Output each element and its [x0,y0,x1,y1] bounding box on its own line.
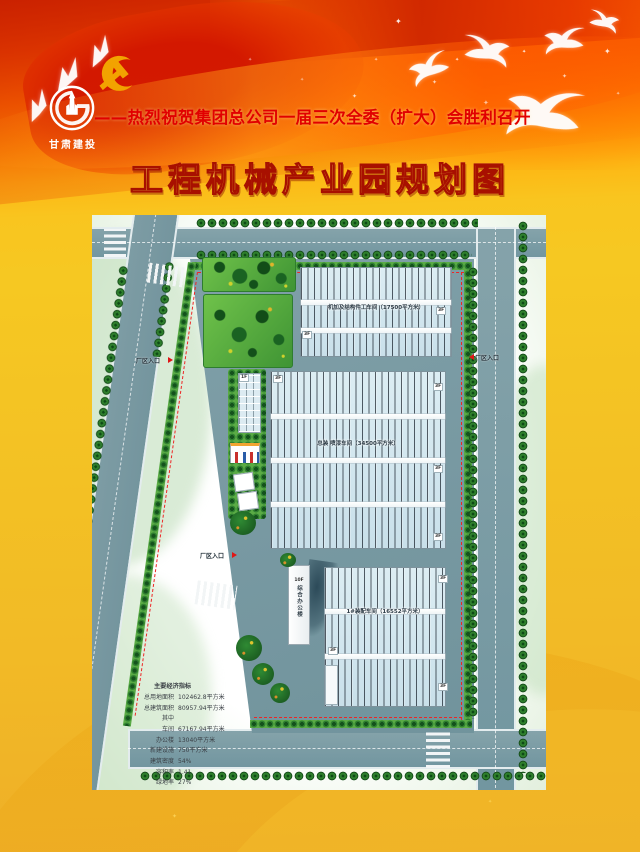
company-logo-icon [48,84,96,132]
entrance-label: 厂区入口 [200,551,224,560]
sparkle-icon: ✦ [604,48,611,56]
indicator-row: 容积率1.41 [114,768,284,779]
sparkle-icon: ✦ [248,58,252,63]
landscape-blob [230,511,256,535]
economic-indicators: 主要经济指标 总用地面积102462.8平方米 总建筑面积80957.94平方米… [114,681,284,789]
lane-line [495,227,496,790]
floor-tag: 3F [302,331,312,339]
entrance-arrow-icon [168,357,176,363]
workshop-machining [300,267,452,357]
crosswalk [195,580,238,609]
ancillary-building [233,472,255,493]
floor-tag: 3F [438,683,448,691]
floor-tag: 3F [433,465,443,473]
entrance-label: 厂区入口 [136,356,160,365]
energy-workshop-building [238,373,261,433]
sparkle-icon: ✦ [352,94,357,100]
sparkle-icon: ✦ [395,18,402,26]
site-boundary-dash [254,717,462,718]
workshop-label: 1#装配车间（16552平方米） [324,607,446,615]
dove-icon [537,16,589,63]
road-right [476,227,516,790]
floor-tag: 3F [436,307,446,315]
street-trees [468,267,478,719]
site-boundary-dash [461,272,462,720]
sparkle-icon: ✦ [488,800,492,805]
workshop-assembly-1 [324,567,446,707]
park-grove [203,294,293,368]
sparkle-icon: ✦ [432,80,437,86]
workshop-assembly-paint [270,371,446,549]
indicator-row: 办公楼13040平方米 [114,736,284,747]
floor-tag: 3F [438,575,448,583]
lane-line [92,242,546,243]
workshop-label: 总装 喷漆车间（34500平方米） [270,439,446,447]
floor-tag: 1F [239,374,249,382]
indicator-row: 其中 [114,714,284,725]
logo-text: 甘肃建投 [38,136,108,151]
sparkle-icon: ✦ [374,58,378,63]
dove-icon [402,45,453,91]
landscape-blob [236,635,262,661]
sparkle-icon: ✦ [455,58,459,63]
indicator-row: 新建设施750平方米 [114,746,284,757]
floor-tag: 3F [433,533,443,541]
office-label: 综合办公楼 [295,585,303,618]
indicator-row: 总建筑面积80957.94平方米 [114,704,284,715]
floor-tag: 10F [294,578,303,583]
poster: ✦ ✦ ✦ ✦ ✦ ✦ ✦ ✦ ✦ ✦ ✦ ✦ ✦ ✦ 甘肃建投 ——热烈祝贺集… [0,0,640,852]
dove-icon [588,6,622,36]
sparkle-icon: ✦ [172,814,177,820]
exhibit-building [230,443,260,463]
entrance-arrow-icon [466,354,474,360]
crosswalk [426,730,450,768]
sparkle-icon: ✦ [300,78,304,83]
landscape-blob [280,553,296,567]
entrance-arrow-icon [232,552,240,558]
office-tower: 10F 综合办公楼 [288,565,310,645]
street-trees [196,218,478,228]
entrance-label: 厂区入口 [475,353,499,362]
indicator-row: 建筑密度54% [114,757,284,768]
indicator-row: 车间67167.94平方米 [114,725,284,736]
indicator-row: 总用地面积102462.8平方米 [114,693,284,704]
sparkle-icon: ✦ [522,50,526,55]
sparkle-icon: ✦ [562,74,567,80]
sparkle-icon: ✦ [616,92,620,97]
street-trees [518,221,528,773]
park-grove [202,257,296,292]
crosswalk [104,229,126,257]
workshop-label: 机加及结构件工车间（17500平方米） [300,303,452,311]
congrats-banner-text: ——热烈祝贺集团总公司一届三次全委（扩大）会胜利召开 [94,104,594,128]
indicator-row: 绿地率27% [114,778,284,789]
floor-tag: 3F [273,375,283,383]
indicators-title: 主要经济指标 [154,681,284,690]
dove-icon [460,25,516,74]
site-plan-map: 1F 10F 综合办公楼 机加及结构件工车间（17500平方米） 3F 3F 总… [92,215,546,790]
page-title: 工程机械产业园规划图 [130,153,510,201]
ancillary-building [237,491,259,512]
workshop-annex [325,665,338,705]
floor-tag: 3F [328,647,338,655]
floor-tag: 3F [433,383,443,391]
